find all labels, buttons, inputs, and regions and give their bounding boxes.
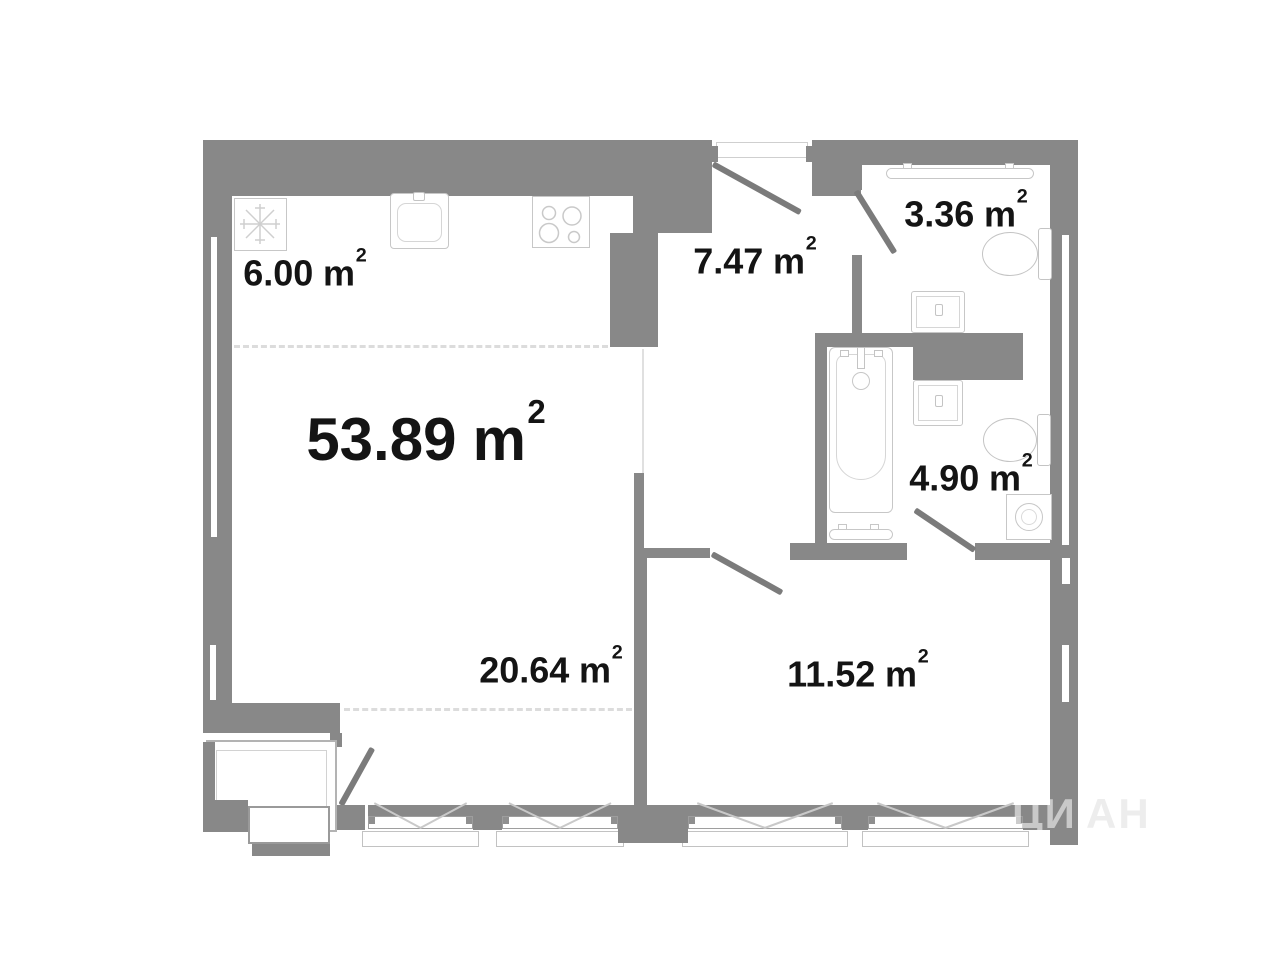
wall (913, 347, 1023, 380)
window-slit (211, 237, 217, 537)
area-sup: 2 (527, 395, 545, 428)
room-area-label-kitchen: 6.00m2 (243, 255, 367, 291)
window-icon (688, 805, 842, 851)
entrance-threshold (716, 142, 808, 158)
refrigerator-icon (234, 198, 287, 251)
wash-basin-icon (911, 291, 965, 333)
window-icon (868, 805, 1023, 851)
area-unit: m (989, 460, 1021, 496)
dashed-zone-line (344, 708, 632, 711)
wall (203, 140, 232, 710)
area-value: 20.64 (479, 652, 569, 688)
area-unit: m (773, 243, 805, 279)
door-frame (708, 146, 718, 162)
wall (861, 140, 1078, 165)
wall (337, 805, 365, 830)
wall (633, 196, 712, 233)
area-sup: 2 (356, 246, 367, 266)
area-unit: m (579, 652, 611, 688)
wall (852, 158, 862, 190)
room-area-label-total: 53.89m2 (306, 410, 545, 470)
area-sup: 2 (1017, 187, 1028, 207)
area-value: 7.47 (693, 243, 763, 279)
window-slit (1062, 558, 1070, 584)
window-slit (1062, 645, 1069, 702)
area-sup: 2 (806, 234, 817, 254)
wall (647, 548, 710, 558)
wash-basin-icon (913, 380, 963, 426)
stove-icon (532, 196, 590, 248)
bedroom-door-swing-icon (711, 551, 784, 595)
window-slit (1062, 235, 1069, 545)
room-area-label-wc: 3.36m2 (904, 196, 1028, 232)
area-unit: m (984, 196, 1016, 232)
wall (203, 742, 215, 804)
window-icon (368, 805, 473, 851)
towel-rail-icon (829, 529, 893, 540)
area-unit: m (885, 656, 917, 692)
floor-plan: 53.89m2 6.00m2 7.47m2 3.36m2 4.90m2 20.6… (0, 0, 1280, 960)
area-unit: m (473, 410, 526, 470)
entrance-door-swing-icon (712, 161, 802, 215)
area-sup: 2 (1022, 451, 1033, 471)
wall (203, 800, 248, 832)
balcony-step (248, 806, 330, 844)
watermark: ЦИ (1012, 793, 1077, 835)
wall (634, 548, 647, 808)
wall (975, 543, 1052, 560)
watermark: АН (1086, 793, 1151, 835)
window-icon (502, 805, 618, 851)
area-sup: 2 (918, 647, 929, 667)
room-area-label-bathroom: 4.90m2 (909, 460, 1033, 496)
wall (203, 703, 340, 733)
room-area-label-living: 20.64m2 (479, 652, 623, 688)
wall (473, 805, 502, 830)
wall (634, 473, 644, 553)
bathroom-door-swing-icon (913, 508, 976, 553)
room-area-label-bedroom: 11.52m2 (787, 656, 929, 692)
wall (618, 805, 688, 843)
area-value: 3.36 (904, 196, 974, 232)
area-value: 53.89 (306, 410, 456, 470)
window-slit (210, 645, 216, 700)
wall (815, 333, 1023, 347)
dashed-zone-line (234, 345, 608, 348)
wall (842, 805, 868, 830)
opening-line (642, 349, 644, 473)
area-value: 11.52 (787, 656, 875, 692)
washing-machine-icon (1006, 494, 1052, 540)
area-sup: 2 (612, 643, 623, 663)
area-unit: m (323, 255, 355, 291)
wall (815, 333, 827, 545)
towel-rail-icon (886, 168, 1034, 179)
room-area-label-hallway: 7.47m2 (693, 243, 817, 279)
area-value: 4.90 (909, 460, 979, 496)
door-frame (806, 146, 816, 162)
wall (252, 844, 330, 856)
area-value: 6.00 (243, 255, 313, 291)
wall (852, 255, 862, 333)
wc-door-swing-icon (853, 189, 897, 254)
wall (610, 233, 658, 347)
kitchen-sink-icon (390, 193, 449, 249)
balcony-door-swing-icon (338, 747, 375, 807)
wall (790, 543, 907, 560)
wall (203, 140, 712, 196)
